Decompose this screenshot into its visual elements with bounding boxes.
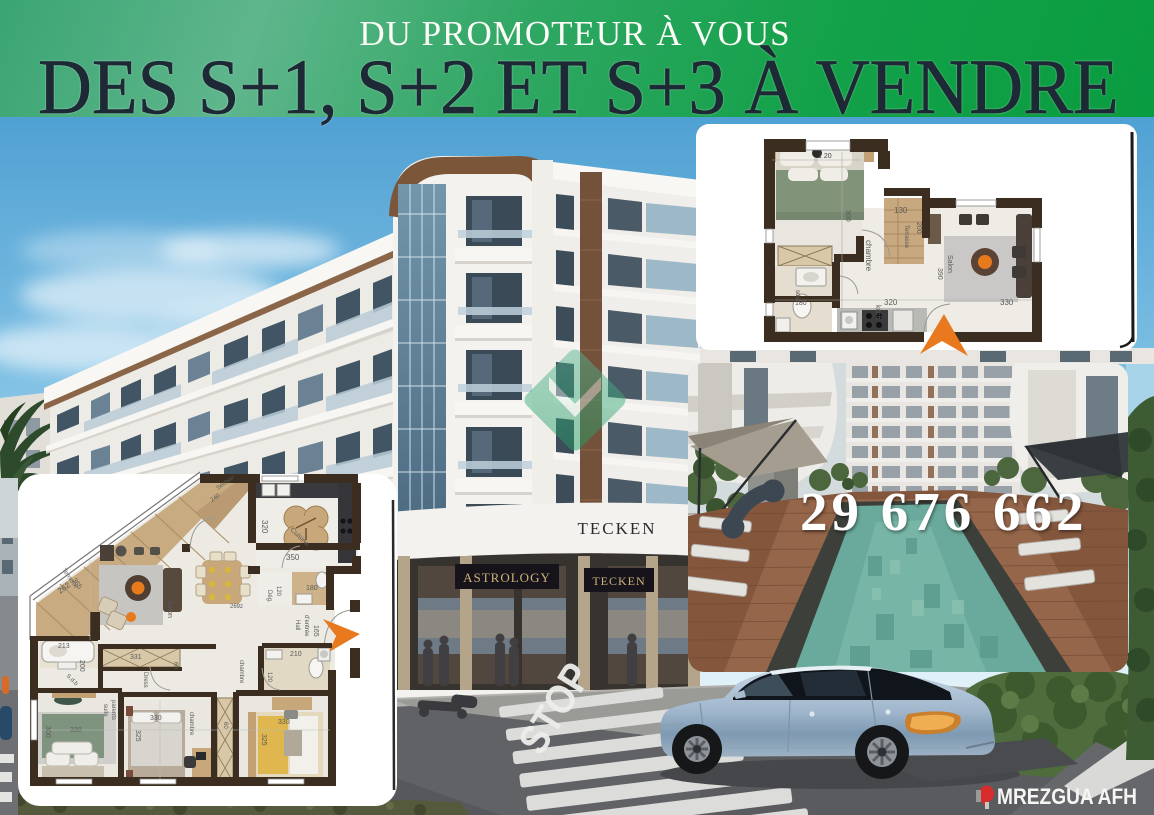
svg-text:325: 325 [134, 730, 141, 742]
svg-text:ASTROLOGY: ASTROLOGY [463, 570, 551, 585]
svg-text:Salon: Salon [166, 600, 173, 618]
svg-text:325: 325 [260, 734, 267, 746]
svg-text:210: 210 [290, 651, 302, 658]
svg-text:330: 330 [1000, 298, 1014, 307]
svg-text:180: 180 [795, 300, 807, 307]
svg-text:60: 60 [172, 662, 178, 669]
svg-text:350: 350 [286, 553, 300, 562]
svg-text:120: 120 [275, 586, 281, 597]
svg-text:330: 330 [278, 719, 290, 726]
svg-text:parents: parents [110, 700, 116, 720]
svg-text:60: 60 [222, 722, 228, 729]
svg-text:331: 331 [130, 654, 142, 661]
svg-text:200: 200 [78, 660, 85, 672]
svg-text:chambre: chambre [238, 660, 244, 684]
svg-text:Hall: Hall [294, 620, 300, 630]
svg-text:TECKEN: TECKEN [592, 574, 645, 588]
svg-text:390: 390 [936, 268, 943, 280]
svg-text:chambre: chambre [864, 240, 873, 272]
svg-text:sde: sde [794, 290, 800, 300]
svg-text:165: 165 [312, 625, 319, 637]
svg-text:Terrasse: Terrasse [903, 225, 909, 249]
svg-text:320: 320 [260, 520, 269, 534]
svg-text:suite: suite [102, 704, 108, 717]
svg-text:d'entrée: d'entrée [303, 615, 309, 637]
svg-text:Dég.: Dég. [266, 590, 272, 603]
svg-text:330: 330 [70, 727, 82, 734]
svg-text:180: 180 [306, 585, 318, 592]
svg-text:300: 300 [844, 210, 851, 222]
svg-text:chambre: chambre [188, 712, 194, 736]
svg-text:200: 200 [915, 222, 922, 234]
svg-text:Dress: Dress [142, 672, 148, 688]
svg-text:1 20: 1 20 [818, 153, 832, 160]
svg-text:269z: 269z [230, 604, 243, 610]
svg-text:120: 120 [266, 672, 272, 683]
svg-text:130: 130 [894, 206, 908, 215]
svg-text:Salon: Salon [946, 255, 953, 273]
svg-text:kitch: kitch [874, 305, 881, 320]
svg-text:213: 213 [58, 643, 70, 650]
svg-text:300: 300 [44, 726, 51, 738]
svg-text:320: 320 [884, 298, 898, 307]
svg-text:TECKEN: TECKEN [577, 519, 656, 538]
